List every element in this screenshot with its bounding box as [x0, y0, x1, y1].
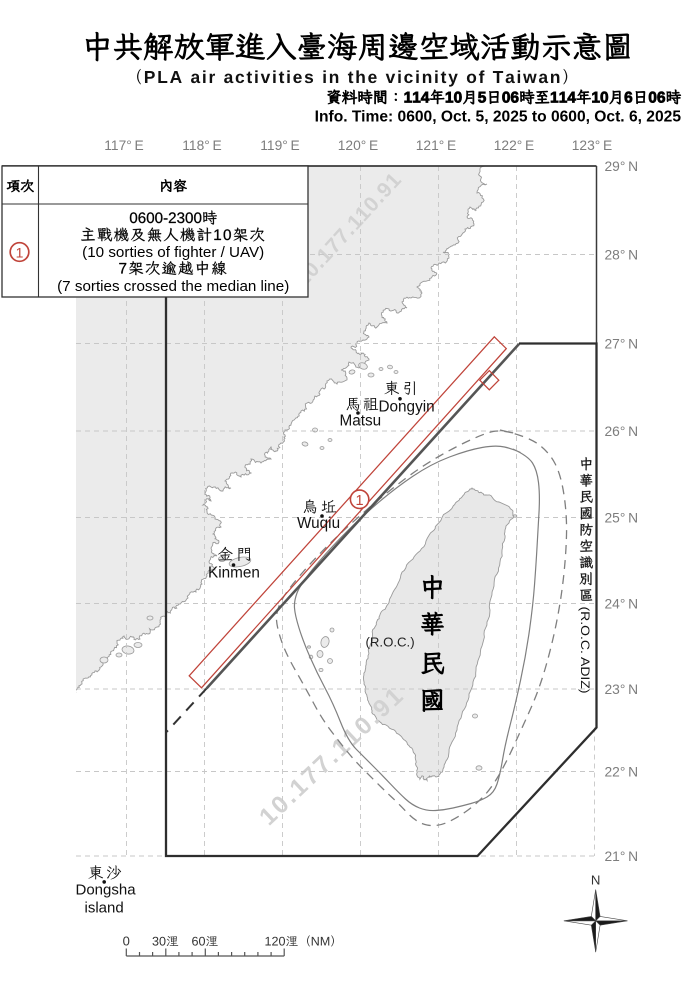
- svg-text:0: 0: [123, 934, 130, 949]
- svg-text:117° E: 117° E: [104, 138, 143, 153]
- svg-text:27° N: 27° N: [605, 336, 639, 351]
- svg-text:118° E: 118° E: [182, 138, 221, 153]
- svg-text:Wuqiu: Wuqiu: [297, 515, 340, 532]
- svg-text:Dongyin: Dongyin: [379, 399, 435, 416]
- svg-text:(R.O.C.): (R.O.C.): [366, 635, 415, 650]
- svg-text:Matsu: Matsu: [340, 413, 382, 430]
- svg-text:Kinmen: Kinmen: [208, 565, 260, 582]
- svg-text:23° N: 23° N: [605, 682, 639, 697]
- svg-text:(10 sorties of fighter / UAV): (10 sorties of fighter / UAV): [82, 244, 264, 261]
- svg-text:29° N: 29° N: [605, 159, 639, 174]
- svg-text:22° N: 22° N: [605, 764, 639, 779]
- svg-text:121° E: 121° E: [416, 138, 457, 153]
- svg-text:N: N: [591, 873, 601, 888]
- svg-text:122° E: 122° E: [494, 138, 535, 153]
- svg-text:(R.O.C. ADIZ): (R.O.C. ADIZ): [578, 607, 591, 694]
- svg-text:28° N: 28° N: [605, 247, 639, 262]
- svg-text:25° N: 25° N: [605, 510, 639, 525]
- svg-text:Dongsha: Dongsha: [76, 882, 137, 899]
- svg-text:26° N: 26° N: [605, 424, 639, 439]
- svg-text:island: island: [85, 900, 124, 917]
- svg-text:119° E: 119° E: [260, 138, 299, 153]
- svg-text:(7 sorties crossed the median: (7 sorties crossed the median line): [57, 278, 289, 295]
- svg-text:24° N: 24° N: [605, 596, 639, 611]
- svg-text:1: 1: [16, 245, 24, 261]
- svg-text:120° E: 120° E: [338, 138, 379, 153]
- svg-text:21° N: 21° N: [605, 849, 639, 864]
- svg-text:1: 1: [356, 493, 364, 509]
- svg-text:123° E: 123° E: [572, 138, 613, 153]
- svg-text:Info. Time: 0600, Oct. 5, 2025: Info. Time: 0600, Oct. 5, 2025 to 0600, …: [315, 108, 682, 125]
